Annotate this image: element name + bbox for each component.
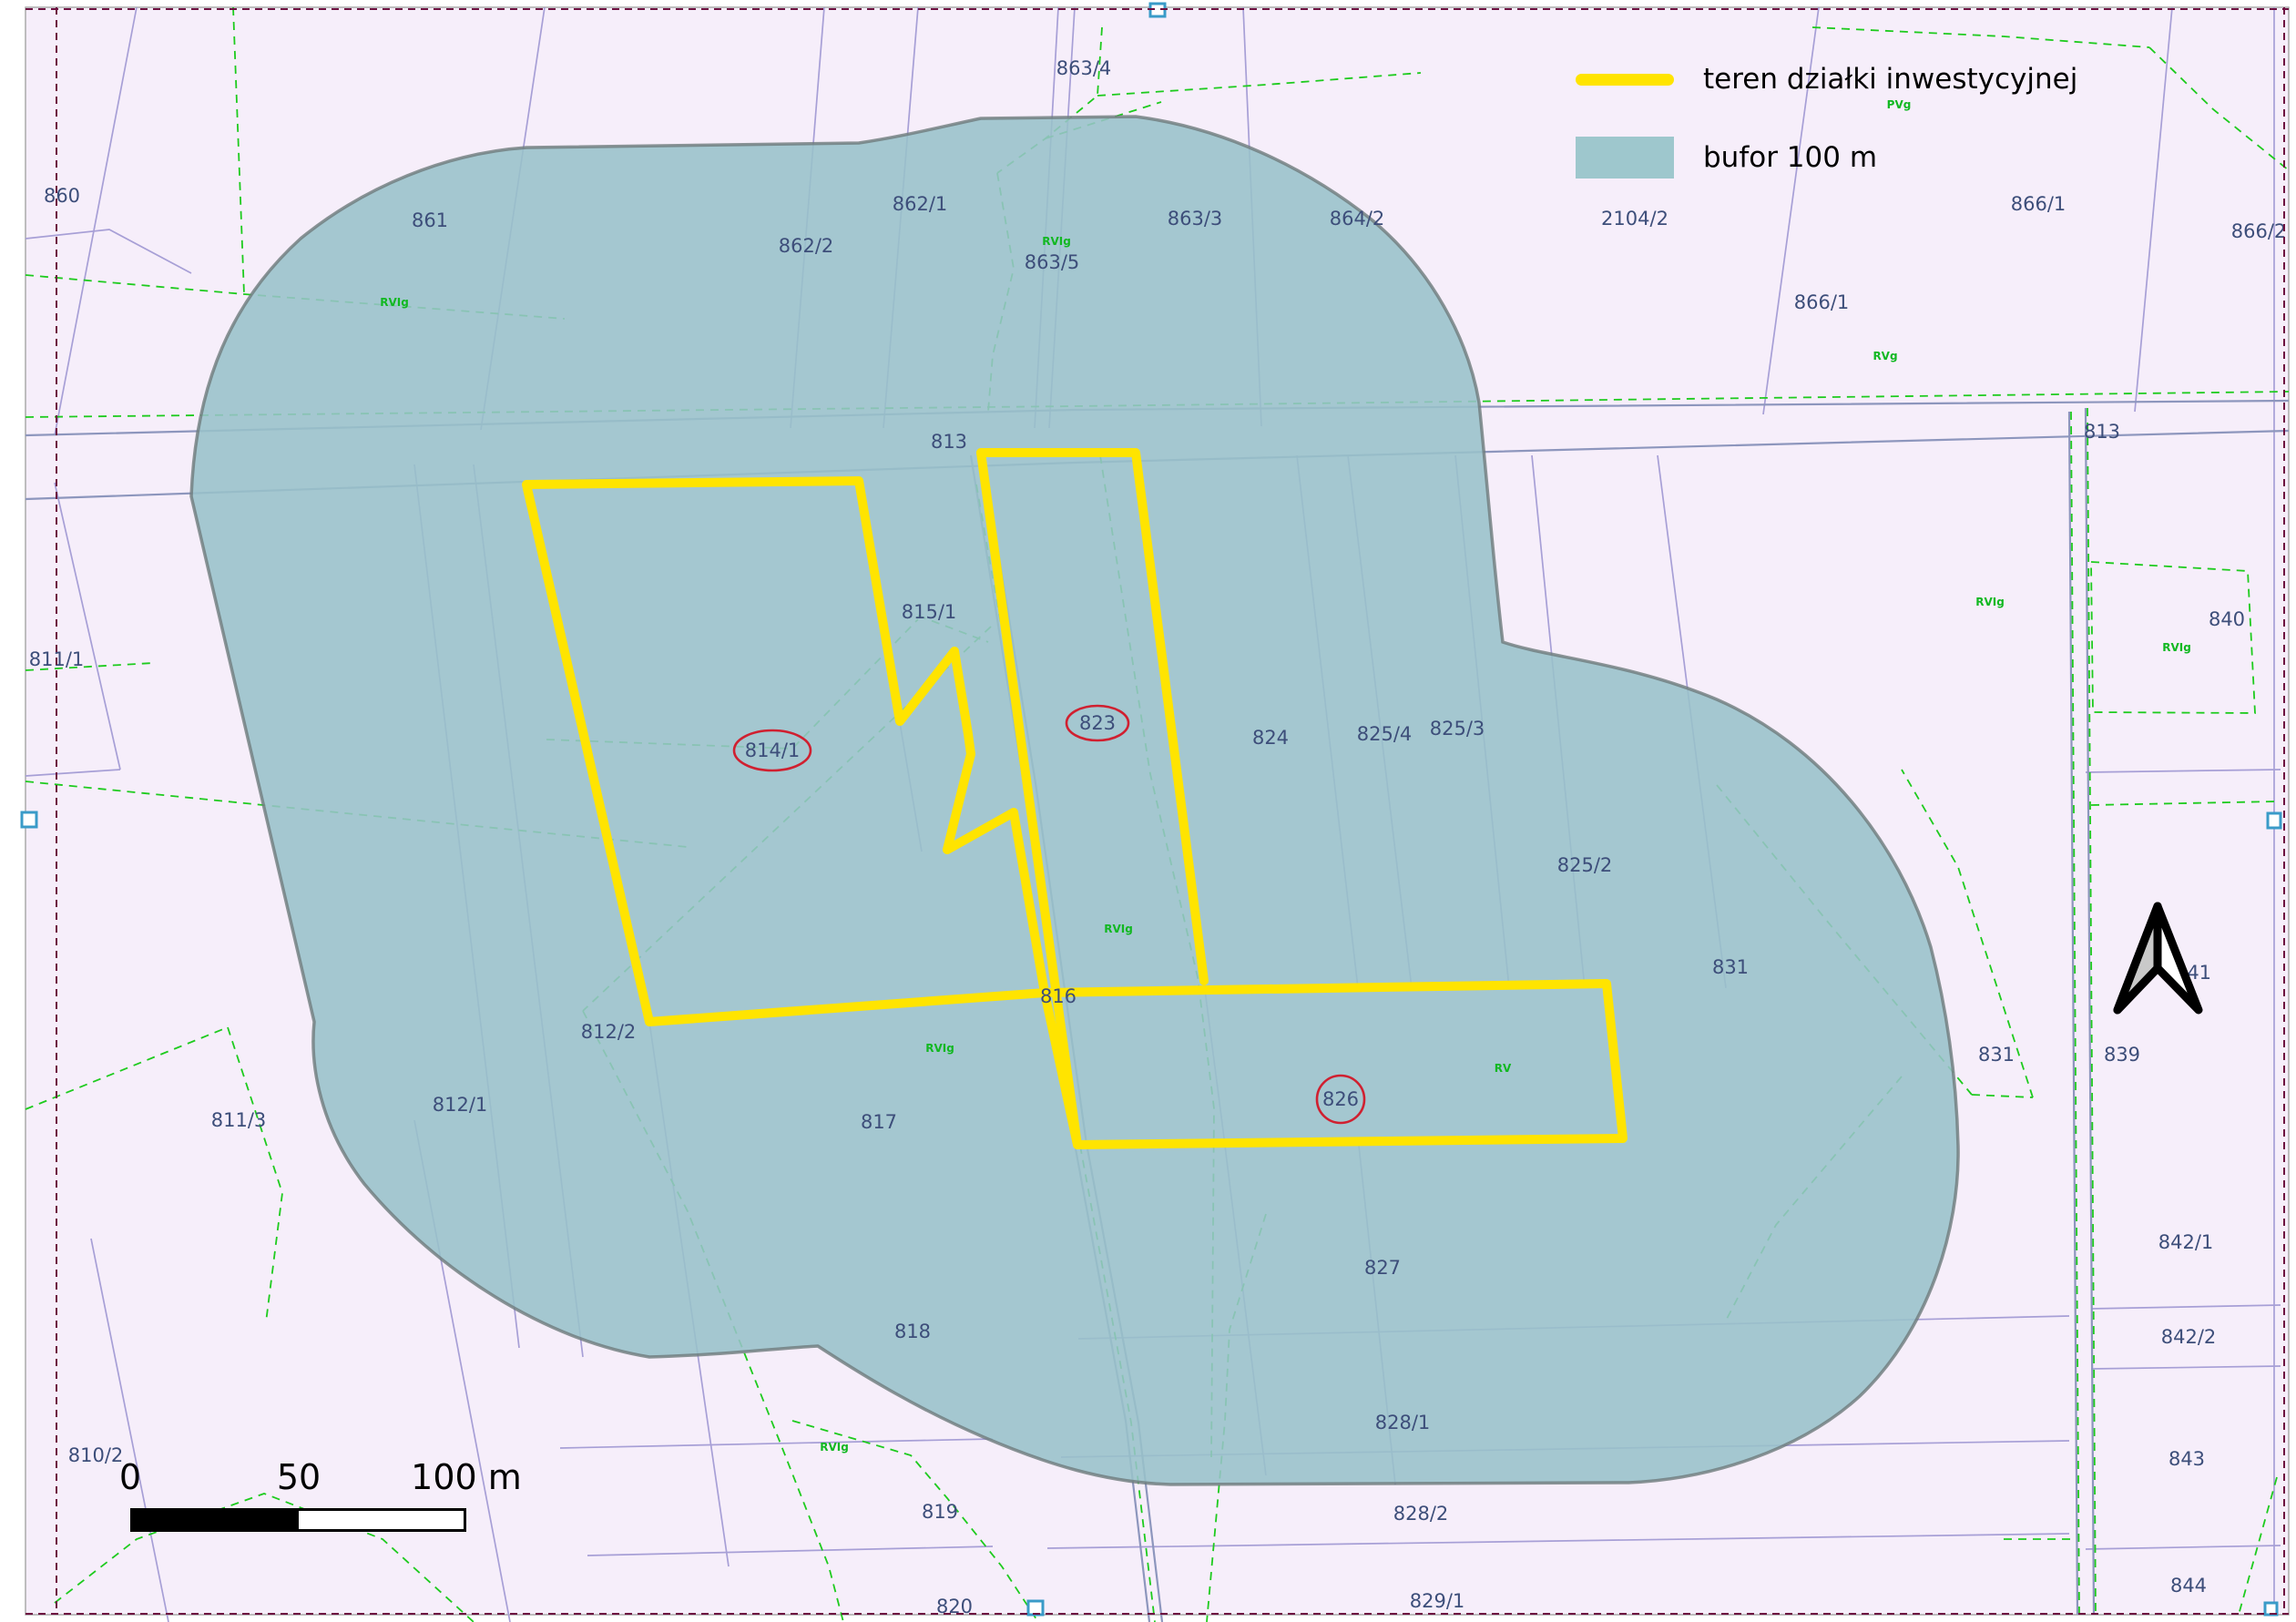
legend-item-buffer: bufor 100 m	[1576, 135, 2077, 180]
parcel-label: 827	[1364, 1257, 1401, 1279]
parcel-label-circled: 814/1	[745, 740, 801, 761]
parcel-label: 813	[2084, 421, 2120, 443]
legend-item-investment-area: teren działki inwestycyjnej	[1576, 56, 2077, 102]
parcel-label: 812/1	[433, 1094, 488, 1116]
scale-tick-100: 100 m	[411, 1457, 522, 1497]
legend-swatch-yellow-line	[1576, 74, 1674, 86]
soil-class-label: RVIg	[820, 1441, 849, 1454]
soil-class-label: RVIg	[1104, 923, 1133, 935]
scale-bar: 0 50 100 m	[100, 1457, 537, 1532]
parcel-label: 842/1	[2158, 1231, 2214, 1253]
parcel-label: 863/4	[1056, 57, 1112, 79]
scale-bar-black-segment	[133, 1511, 299, 1529]
parcel-label: 816	[1040, 985, 1077, 1007]
parcel-label: 812/2	[581, 1021, 637, 1043]
parcel-label: 819	[922, 1501, 958, 1523]
parcel-label: 866/2	[2231, 220, 2287, 242]
map-legend: teren działki inwestycyjnej bufor 100 m	[1576, 56, 2077, 213]
soil-class-label: RVIg	[1975, 596, 2005, 608]
legend-label-buffer: bufor 100 m	[1703, 141, 1877, 174]
parcel-label: 820	[936, 1596, 973, 1617]
scale-tick-50: 50	[277, 1457, 321, 1497]
parcel-label: 844	[2170, 1575, 2207, 1596]
map-canvas: 860861862/1862/2863/4863/5863/3864/22104…	[0, 0, 2296, 1622]
parcel-label: 839	[2104, 1044, 2140, 1066]
parcel-label: 825/3	[1430, 718, 1485, 740]
parcel-label: 818	[894, 1321, 931, 1342]
scale-bar-ticks: 0 50 100 m	[100, 1457, 537, 1501]
parcel-label: 811/3	[211, 1109, 267, 1131]
legend-swatch-teal-fill	[1576, 137, 1674, 179]
parcel-label: 866/1	[1794, 291, 1850, 313]
soil-class-label: RVIg	[925, 1042, 954, 1055]
parcel-label: 863/3	[1168, 208, 1223, 230]
parcel-label: 862/1	[893, 193, 948, 215]
parcel-label: 824	[1252, 727, 1289, 749]
parcel-label: 862/2	[779, 235, 834, 257]
parcel-label: 843	[2168, 1448, 2205, 1470]
parcel-label: 842/2	[2161, 1326, 2217, 1348]
parcel-label: 863/5	[1025, 251, 1080, 273]
map-stage: 860861862/1862/2863/4863/5863/3864/22104…	[0, 0, 2296, 1622]
scale-bar-graphic	[130, 1508, 466, 1532]
soil-class-label: RVIg	[380, 296, 409, 309]
parcel-label: 815/1	[902, 601, 957, 623]
parcel-label: 831	[1978, 1044, 2015, 1066]
soil-class-label: RVg	[1873, 350, 1897, 362]
parcel-label: 825/2	[1557, 854, 1613, 876]
soil-class-label: RV	[1495, 1062, 1512, 1075]
parcel-label: 831	[1712, 956, 1749, 978]
soil-class-label: RVIg	[1042, 235, 1071, 248]
parcel-label: 825/4	[1357, 723, 1413, 745]
parcel-label: 864/2	[1330, 208, 1385, 230]
parcel-label-circled: 826	[1322, 1088, 1359, 1110]
parcel-label-circled: 823	[1079, 712, 1116, 734]
parcel-label: 861	[412, 209, 448, 231]
parcel-label: 829/1	[1410, 1590, 1465, 1612]
parcel-label: 817	[861, 1111, 897, 1133]
scale-tick-0: 0	[119, 1457, 141, 1497]
parcel-label: 813	[931, 431, 967, 453]
parcel-label: 828/1	[1375, 1412, 1431, 1433]
soil-class-label: RVIg	[2162, 641, 2191, 654]
legend-label-investment-area: teren działki inwestycyjnej	[1703, 63, 2077, 96]
parcel-label: 860	[44, 185, 80, 207]
parcel-label: 828/2	[1393, 1503, 1449, 1525]
parcel-label: 840	[2209, 608, 2245, 630]
